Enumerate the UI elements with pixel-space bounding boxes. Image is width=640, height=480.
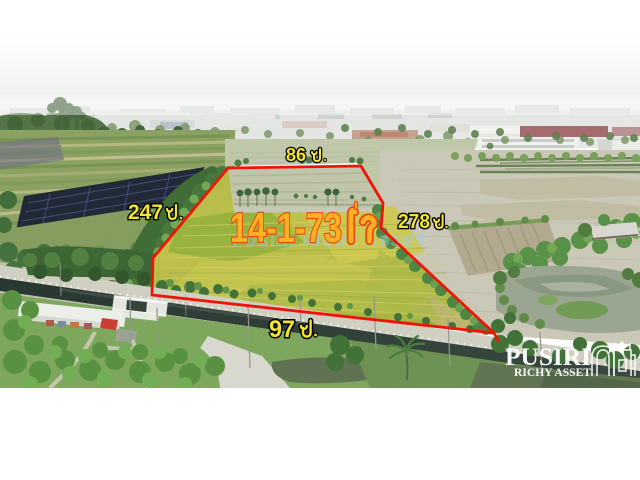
svg-text:278: 278 [398, 211, 430, 233]
svg-text:97: 97 [269, 316, 295, 343]
svg-text:RICHY ASSET: RICHY ASSET [514, 365, 591, 379]
svg-text:14-1-73: 14-1-73 [230, 204, 342, 251]
svg-text:247: 247 [128, 201, 163, 224]
svg-text:86: 86 [286, 145, 306, 165]
